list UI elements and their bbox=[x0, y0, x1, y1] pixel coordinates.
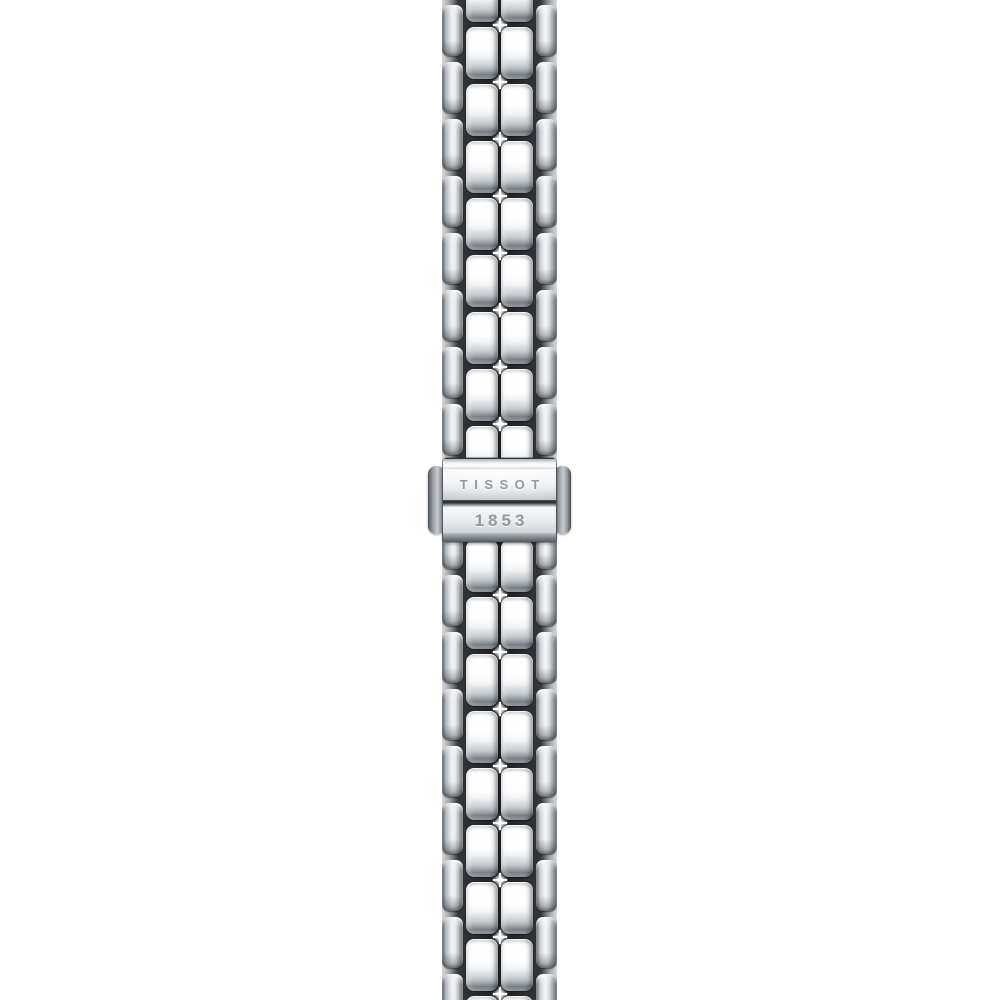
bracelet-link bbox=[466, 597, 498, 649]
bracelet-link bbox=[501, 27, 533, 79]
watch-bracelet-photo: TISSOT 1853 bbox=[0, 0, 1000, 1000]
clasp-hinge-right bbox=[554, 466, 571, 534]
bracelet-link bbox=[536, 974, 557, 1000]
bracelet-link bbox=[501, 939, 533, 991]
bracelet-link bbox=[442, 233, 463, 284]
bracelet-link bbox=[466, 0, 498, 22]
bracelet-link bbox=[442, 974, 463, 1000]
bracelet-link bbox=[442, 803, 463, 854]
bracelet-link bbox=[442, 5, 463, 56]
bracelet-link bbox=[536, 803, 557, 854]
clasp: TISSOT 1853 bbox=[428, 458, 571, 542]
clasp-upper-face: TISSOT bbox=[443, 469, 556, 500]
bracelet-link bbox=[536, 575, 557, 626]
bracelet-link bbox=[501, 597, 533, 649]
bracelet-link bbox=[466, 825, 498, 877]
bracelet-link bbox=[442, 860, 463, 911]
bracelet-link bbox=[501, 996, 533, 1000]
bracelet-link bbox=[442, 119, 463, 170]
bracelet-link bbox=[466, 711, 498, 763]
bracelet-link bbox=[536, 860, 557, 911]
clasp-bottom-bevel bbox=[443, 533, 556, 542]
bracelet-link bbox=[466, 141, 498, 193]
bracelet-link bbox=[442, 290, 463, 341]
bracelet-link bbox=[442, 689, 463, 740]
clasp-lower-face: 1853 bbox=[443, 507, 556, 533]
bracelet-link bbox=[466, 198, 498, 250]
bracelet-link bbox=[501, 0, 533, 22]
bracelet-link bbox=[466, 27, 498, 79]
bracelet-link bbox=[466, 84, 498, 136]
clasp-body: TISSOT 1853 bbox=[443, 458, 556, 542]
bracelet-link bbox=[501, 540, 533, 592]
bracelet-link bbox=[442, 347, 463, 398]
bracelet-link bbox=[442, 917, 463, 968]
bracelet-link bbox=[466, 939, 498, 991]
bracelet-link bbox=[536, 404, 557, 455]
bracelet-link bbox=[536, 119, 557, 170]
bracelet-link bbox=[442, 404, 463, 455]
bracelet-link bbox=[501, 141, 533, 193]
clasp-groove bbox=[443, 500, 556, 507]
bracelet-link bbox=[536, 917, 557, 968]
bracelet-link bbox=[536, 5, 557, 56]
bracelet-link bbox=[442, 632, 463, 683]
bracelet-link bbox=[501, 255, 533, 307]
bracelet-link bbox=[501, 825, 533, 877]
bracelet-link bbox=[536, 233, 557, 284]
bracelet-link bbox=[501, 768, 533, 820]
bracelet-link bbox=[442, 746, 463, 797]
bracelet-link bbox=[466, 882, 498, 934]
bracelet-link bbox=[536, 746, 557, 797]
bracelet-link bbox=[466, 654, 498, 706]
bracelet-link bbox=[501, 711, 533, 763]
bracelet-link bbox=[536, 290, 557, 341]
bracelet-link bbox=[501, 882, 533, 934]
bracelet-link bbox=[442, 62, 463, 113]
bracelet-link bbox=[536, 176, 557, 227]
bracelet-link bbox=[466, 255, 498, 307]
bracelet-link bbox=[536, 62, 557, 113]
bracelet-link bbox=[501, 198, 533, 250]
clasp-top-bevel bbox=[443, 458, 556, 469]
bracelet-link bbox=[466, 540, 498, 592]
bracelet-link bbox=[466, 369, 498, 421]
bracelet-link bbox=[501, 312, 533, 364]
bracelet-link bbox=[501, 84, 533, 136]
bracelet-link bbox=[442, 176, 463, 227]
bracelet-link bbox=[501, 369, 533, 421]
clasp-year-engraving: 1853 bbox=[475, 512, 529, 529]
clasp-brand-engraving: TISSOT bbox=[460, 478, 546, 491]
bracelet-link bbox=[442, 575, 463, 626]
bracelet-link bbox=[501, 654, 533, 706]
bracelet-link bbox=[466, 996, 498, 1000]
bracelet-link bbox=[466, 312, 498, 364]
bracelet-link bbox=[536, 632, 557, 683]
bracelet-link bbox=[536, 689, 557, 740]
bracelet-link bbox=[536, 347, 557, 398]
bracelet-link bbox=[466, 768, 498, 820]
